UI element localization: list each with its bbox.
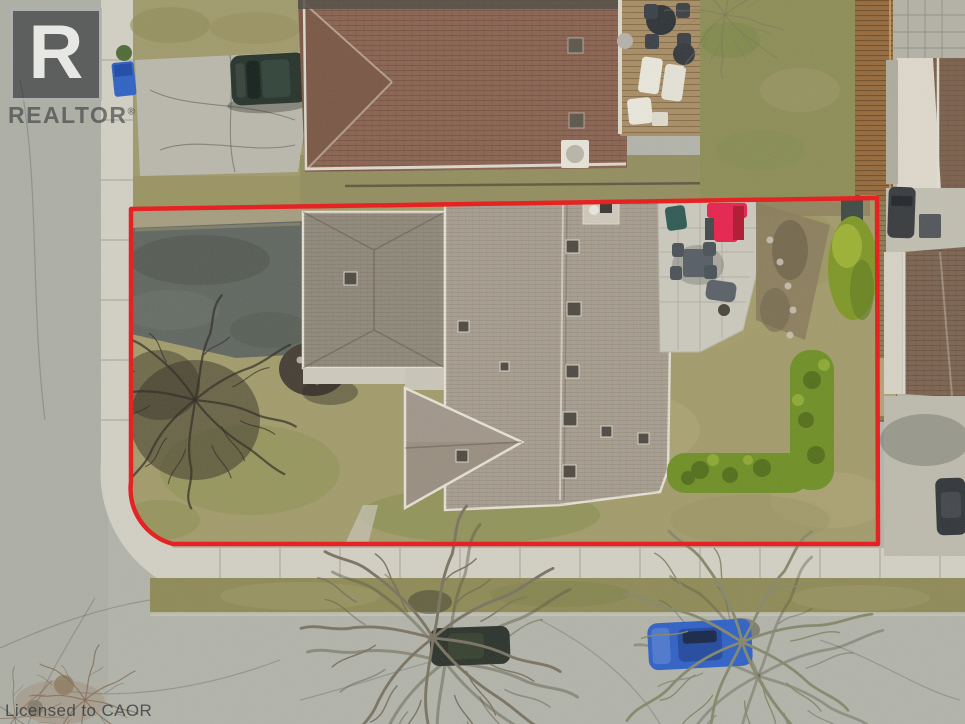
aerial-photo — [0, 0, 965, 724]
realtor-logo: R — [10, 8, 102, 101]
license-text: Licensed to CAOR — [5, 701, 152, 721]
realtor-wordmark: REALTOR® — [8, 102, 135, 129]
realtor-logo-r-icon: R — [29, 15, 84, 91]
brand-text: REALTOR — [8, 102, 128, 128]
listing-photo-page: R REALTOR® Licensed to CAOR — [0, 0, 965, 724]
registered-mark: ® — [128, 106, 135, 117]
photo-grain-overlay — [0, 0, 965, 724]
